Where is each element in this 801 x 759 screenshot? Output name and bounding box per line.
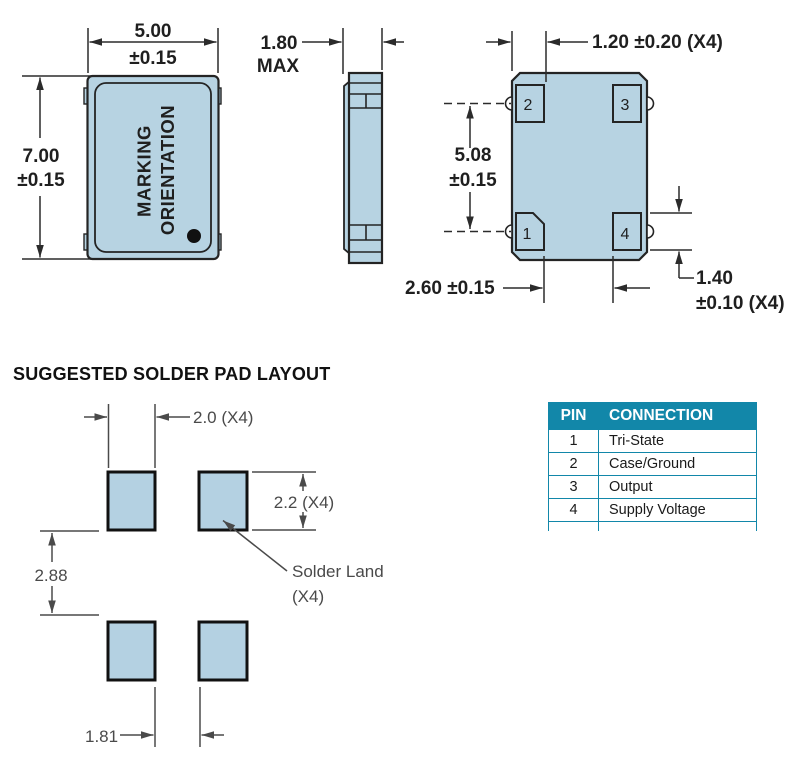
pad-label-3: 3 — [621, 97, 630, 114]
pad-label-2: 2 — [524, 97, 533, 114]
pin-number: 4 — [549, 499, 599, 522]
package-drawing-page: 5.00 ±0.15 7.00 ±0.15 MARKING — [0, 0, 801, 759]
pin-number: 3 — [549, 476, 599, 499]
front-view: 5.00 ±0.15 7.00 ±0.15 MARKING — [17, 21, 221, 259]
side-view-body — [344, 73, 382, 263]
pin-connection: Output — [599, 476, 757, 499]
pin-table-header-pin: PIN — [549, 403, 599, 430]
bottom-view: 2 3 1 4 1.20 ±0.20 (X4) 5.08 — [405, 31, 785, 314]
pin-connection-table: PIN CONNECTION 1 Tri-State 2 Case/Ground… — [548, 402, 757, 531]
pin-connection: Supply Voltage — [599, 499, 757, 522]
pin-connection: Tri-State — [599, 430, 757, 453]
horizontal-gap-dim-text: 1.81 — [85, 727, 118, 746]
pin-number: 2 — [549, 453, 599, 476]
pad-label-1: 1 — [523, 226, 532, 243]
solder-land-bottom-left — [108, 622, 155, 680]
solder-lands — [108, 472, 247, 680]
land-height-dim-text: 2.2 (X4) — [274, 493, 334, 512]
pin-table-partial-row — [549, 522, 757, 532]
marking-orientation-line2: ORIENTATION — [157, 105, 178, 235]
pin1-index-dot — [187, 229, 201, 243]
side-view-thickness-dimension — [302, 28, 404, 74]
pad-width-dim-text: 1.20 ±0.20 (X4) — [592, 32, 723, 53]
front-width-tolerance: ±0.15 — [129, 48, 177, 69]
front-width-value: 5.00 — [135, 21, 172, 42]
solder-land-label-line2: (X4) — [292, 587, 324, 606]
front-height-value: 7.00 — [23, 146, 60, 167]
vertical-gap-dim-text: 2.88 — [34, 566, 67, 585]
solder-pad-layout-heading: SUGGESTED SOLDER PAD LAYOUT — [13, 364, 330, 385]
marking-orientation-line1: MARKING — [134, 125, 155, 217]
pad-height-tolerance: ±0.10 (X4) — [696, 293, 785, 314]
centerlines — [444, 104, 511, 232]
pin-connection: Case/Ground — [599, 453, 757, 476]
pad-label-4: 4 — [621, 226, 630, 243]
pin-table-row-4: 4 Supply Voltage — [549, 499, 757, 522]
solder-land-leader-line — [223, 521, 287, 572]
pin-number: 1 — [549, 430, 599, 453]
pin-table-header-connection: CONNECTION — [599, 403, 757, 430]
pin-table-row-1: 1 Tri-State — [549, 430, 757, 453]
side-view: 1.80 MAX — [257, 28, 404, 263]
pin-table-header-row: PIN CONNECTION — [549, 403, 757, 430]
front-height-tolerance: ±0.15 — [17, 170, 65, 191]
solder-land-bottom-right — [199, 622, 247, 680]
land-width-dimension — [84, 404, 190, 468]
solder-pad-layout: 2.0 (X4) 2.2 (X4) 2.88 — [34, 404, 383, 747]
pin-table-row-2: 2 Case/Ground — [549, 453, 757, 476]
solder-land-top-left — [108, 472, 155, 530]
pad-pitch-value: 5.08 — [455, 145, 492, 166]
side-thickness-qualifier: MAX — [257, 56, 300, 77]
pad-gap-dim-text: 2.60 ±0.15 — [405, 278, 495, 299]
pad-height-dimension — [650, 186, 694, 278]
pad-pitch-tolerance: ±0.15 — [449, 170, 497, 191]
side-thickness-value: 1.80 — [261, 33, 298, 54]
solder-land-label-line1: Solder Land — [292, 562, 384, 581]
pad-height-value: 1.40 — [696, 268, 733, 289]
pad-gap-dimension — [503, 256, 650, 303]
horizontal-gap-dimension — [120, 687, 224, 747]
pin-table-row-3: 3 Output — [549, 476, 757, 499]
land-width-dim-text: 2.0 (X4) — [193, 408, 253, 427]
